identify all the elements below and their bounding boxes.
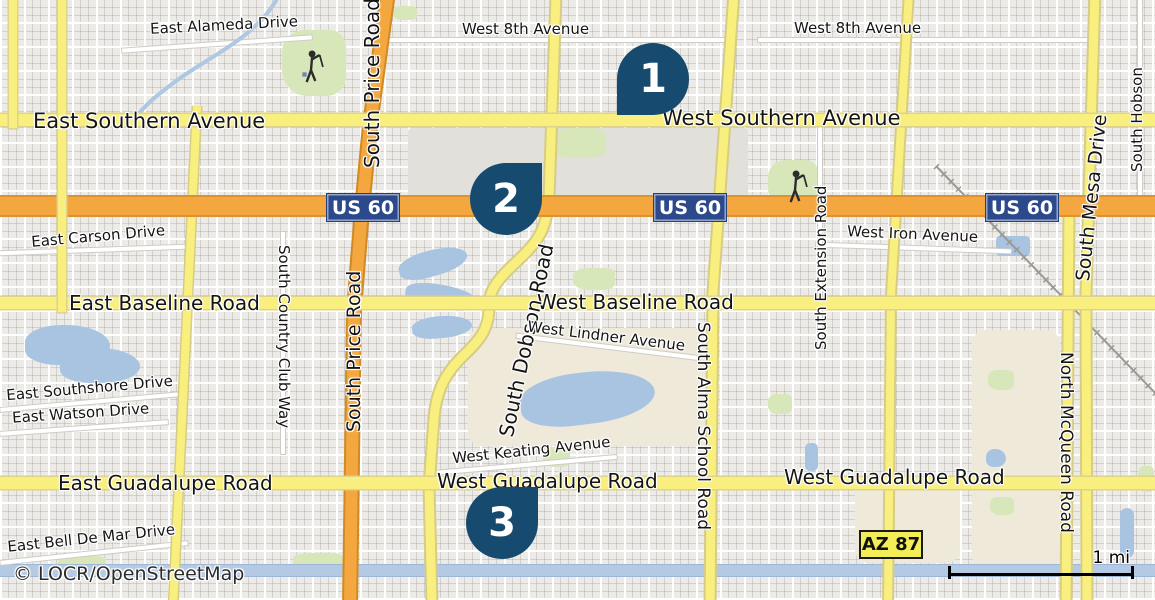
street-label-south-hobson: South Hobson xyxy=(1128,67,1146,172)
road-minor-yellow xyxy=(58,0,66,312)
street-label-east-baseline-road: East Baseline Road xyxy=(69,291,260,315)
street-label-south-price-road: South Price Road xyxy=(360,0,384,168)
scale-bar: 1 mi xyxy=(948,548,1136,580)
map-canvas[interactable]: East Alameda Drive West 8th Avenue West … xyxy=(0,0,1155,600)
map-marker-2[interactable]: 2 xyxy=(470,163,542,235)
street-label-west-baseline-road: West Baseline Road xyxy=(537,290,734,314)
scale-label: 1 mi xyxy=(1092,548,1130,568)
map-marker-3[interactable]: 3 xyxy=(466,487,538,559)
street-label-south-alma-school-road: South Alma School Road xyxy=(693,322,713,530)
road-minor-yellow xyxy=(9,0,17,128)
street-label-west-8th-avenue: West 8th Avenue xyxy=(794,19,921,37)
street-label-west-guadalupe-road: West Guadalupe Road xyxy=(437,469,658,493)
az87-shield: AZ 87 xyxy=(859,530,923,559)
scale-bar-tick xyxy=(1131,566,1134,579)
street-label-south-price-road: South Price Road xyxy=(343,271,365,432)
street-label-east-guadalupe-road: East Guadalupe Road xyxy=(58,471,273,495)
street-label-south-country-club-way: South Country Club Way xyxy=(275,245,293,428)
street-label-west-guadalupe-road: West Guadalupe Road xyxy=(784,465,1005,489)
street-label-east-southern-avenue: East Southern Avenue xyxy=(33,109,265,133)
us60-shield: US 60 xyxy=(327,194,399,221)
map-attribution: © LOCR/OpenStreetMap xyxy=(13,563,244,585)
street-label-south-extension-road: South Extension Road xyxy=(812,186,830,350)
scale-bar-line xyxy=(949,573,1133,576)
us60-shield: US 60 xyxy=(654,194,726,221)
road-us60-freeway xyxy=(0,197,1155,215)
street-label-west-southern-avenue: West Southern Avenue xyxy=(662,106,901,130)
street-label-north-mcqueen-road: North McQueen Road xyxy=(1056,352,1076,533)
scale-bar-tick xyxy=(948,566,951,579)
map-marker-1[interactable]: 1 xyxy=(617,43,689,115)
us60-shield: US 60 xyxy=(986,194,1058,221)
golfer-icon xyxy=(782,168,808,208)
golfer-icon xyxy=(298,48,324,88)
street-label-west-8th-avenue: West 8th Avenue xyxy=(462,20,589,38)
